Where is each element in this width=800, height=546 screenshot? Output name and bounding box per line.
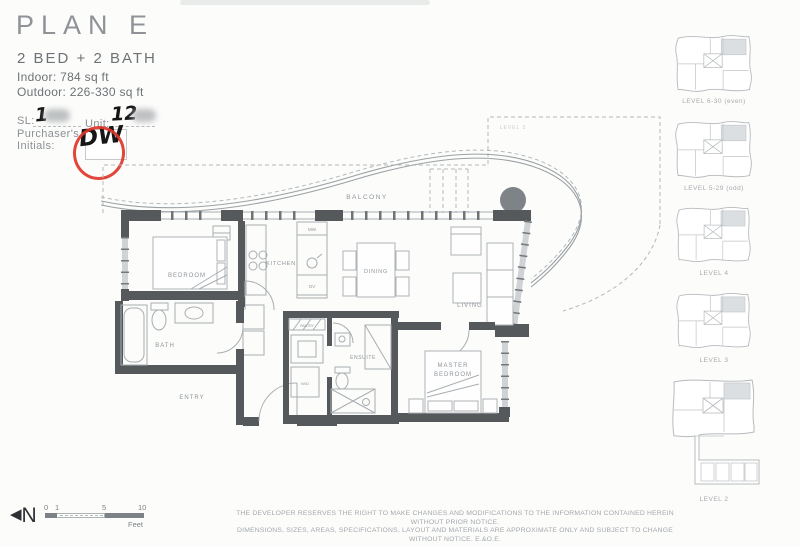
ensuite-toilet-bowl bbox=[336, 373, 348, 389]
shaft-x bbox=[331, 389, 375, 413]
page-title: PLAN E bbox=[16, 10, 154, 41]
wall-pier bbox=[315, 210, 343, 221]
bedroom-label: BEDROOM bbox=[168, 273, 206, 279]
scale-segment-dark-2 bbox=[105, 513, 144, 518]
bath-right-wall bbox=[236, 349, 244, 373]
pillow bbox=[217, 240, 225, 261]
pillow bbox=[217, 263, 225, 284]
kitchen-label: KITCHEN bbox=[266, 261, 296, 267]
key-plan-level-2 bbox=[666, 374, 760, 492]
shower-diagonal bbox=[365, 325, 391, 369]
key-plan-label: LEVEL 2 bbox=[666, 496, 762, 503]
bath-label: BATH bbox=[155, 343, 175, 349]
north-triangle-icon: ◀ bbox=[10, 506, 22, 523]
nightstand bbox=[483, 399, 497, 413]
master-top-wall bbox=[395, 322, 441, 330]
bath-left-wall bbox=[115, 301, 123, 371]
ensuite-sink-bowl bbox=[339, 336, 345, 342]
room-bedroom: BEDROOM bbox=[123, 221, 274, 310]
level-note-label: LEVEL 3 bbox=[500, 125, 527, 131]
floorplan-sheet: PLAN E 2 BED + 2 BATH Indoor: 784 sq ft … bbox=[0, 0, 800, 546]
living-window-band bbox=[514, 221, 528, 327]
master-bottom-wall bbox=[393, 413, 509, 422]
dining-chair bbox=[396, 277, 409, 296]
kitchen-sink bbox=[307, 258, 317, 268]
bath-sink bbox=[185, 307, 203, 319]
entry-left-wall bbox=[236, 371, 244, 425]
balcony-stair-dashes bbox=[430, 169, 468, 213]
closet-inner-wall bbox=[327, 318, 332, 346]
wall-pier bbox=[493, 210, 531, 221]
bedroom-bath-wall bbox=[123, 291, 241, 300]
bathtub bbox=[121, 305, 147, 365]
key-plan-sidebar: LEVEL 6-30 (even) LEVEL 5-29 (odd) LEVEL… bbox=[666, 14, 762, 534]
scale-bar: 0 1 5 10 Feet bbox=[44, 503, 154, 533]
master-pillow bbox=[454, 401, 478, 411]
scale-segment-dark-1 bbox=[45, 513, 57, 518]
faucet-line bbox=[317, 254, 322, 258]
indoor-area: Indoor: 784 sq ft bbox=[17, 70, 109, 84]
linen-box bbox=[291, 335, 323, 363]
bath-bottom-wall bbox=[115, 365, 243, 374]
master-label-1: MASTER bbox=[437, 363, 468, 369]
sl-redaction-smudge bbox=[44, 109, 70, 122]
key-plan-level-6-30 bbox=[666, 30, 760, 96]
dining-chair bbox=[343, 277, 356, 296]
wall-pier bbox=[121, 221, 129, 237]
microwave-label: MW bbox=[308, 227, 317, 232]
bed bbox=[153, 237, 227, 289]
north-arrow: ◀N bbox=[10, 504, 38, 528]
key-plan-label: LEVEL 4 bbox=[666, 270, 762, 277]
kitchen-counter bbox=[246, 225, 266, 295]
key-plan-label: LEVEL 6-30 (even) bbox=[666, 98, 762, 105]
living-label: LIVING bbox=[457, 303, 483, 309]
cooktop-burner bbox=[249, 251, 257, 259]
tall-cabinet bbox=[243, 331, 264, 355]
dining-chair bbox=[396, 251, 409, 270]
coffee-table bbox=[453, 273, 481, 303]
scale-tick-10: 10 bbox=[138, 503, 146, 512]
shaft-circle bbox=[363, 399, 370, 406]
wall-pier bbox=[221, 210, 243, 221]
plan-type: 2 BED + 2 BATH bbox=[17, 50, 157, 67]
pantry-label: PANTRY bbox=[300, 324, 315, 328]
room-living: LIVING bbox=[451, 227, 513, 325]
outdoor-area: Outdoor: 226-330 sq ft bbox=[17, 85, 144, 99]
entry-bottom-wall bbox=[243, 417, 259, 426]
ensuite-bottom-wall bbox=[283, 415, 399, 424]
linen-box-inner bbox=[298, 341, 316, 357]
ensuite-label: ENSUITE bbox=[350, 355, 376, 361]
master-label-2: BEDROOM bbox=[434, 372, 472, 378]
bath-right-wall bbox=[236, 301, 244, 323]
disclaimer-line-1: THE DEVELOPER RESERVES THE RIGHT TO MAKE… bbox=[232, 510, 678, 527]
key-plan-level-3 bbox=[666, 288, 760, 352]
washer-dryer-label: W/D bbox=[301, 381, 309, 386]
sofa bbox=[487, 243, 513, 325]
floor-plan-drawing: BALCONY LEVEL 3 bbox=[95, 105, 670, 470]
toilet-bowl bbox=[152, 310, 166, 330]
bedroom-kitchen-wall bbox=[238, 221, 245, 297]
bathtub-inner bbox=[124, 308, 144, 362]
nightstand bbox=[409, 399, 423, 413]
wall-corner bbox=[495, 324, 529, 337]
sl-underline bbox=[33, 126, 81, 127]
scale-tick-5: 5 bbox=[102, 503, 106, 512]
closet-left-wall bbox=[283, 311, 289, 423]
key-plan-level-4 bbox=[666, 202, 760, 266]
toilet-tank bbox=[151, 303, 168, 310]
armchair bbox=[451, 227, 481, 255]
room-dining: DINING bbox=[343, 243, 409, 297]
scale-unit-label: Feet bbox=[128, 520, 143, 529]
column-circle bbox=[500, 187, 526, 213]
master-pillow bbox=[428, 401, 452, 411]
key-plan-level-5-29 bbox=[666, 116, 760, 182]
ensuite-sink bbox=[335, 333, 350, 346]
ensuite-toilet-tank bbox=[335, 367, 350, 373]
room-master-bedroom: MASTER BEDROOM bbox=[393, 322, 510, 422]
ensuite-right-wall bbox=[391, 318, 398, 418]
closet-top-wall bbox=[283, 311, 399, 318]
key-plan-label: LEVEL 5-29 (odd) bbox=[666, 185, 762, 192]
scale-dash-line bbox=[60, 515, 103, 516]
room-bath: BATH bbox=[115, 301, 244, 374]
dining-label: DINING bbox=[364, 269, 388, 275]
master-top-wall bbox=[469, 322, 495, 330]
fridge bbox=[243, 305, 264, 329]
vanity bbox=[175, 303, 213, 323]
disclaimer-line-2: DIMENSIONS, SIZES, AREAS, SPECIFICATIONS… bbox=[232, 527, 678, 544]
oven-label: OV bbox=[309, 284, 316, 289]
north-letter: N bbox=[22, 504, 38, 527]
entry-label: ENTRY bbox=[179, 395, 204, 401]
dining-chair bbox=[343, 251, 356, 270]
key-plan-label: LEVEL 3 bbox=[666, 357, 762, 364]
room-ensuite: ENSUITE bbox=[283, 318, 399, 424]
scale-tick-0: 0 bbox=[44, 503, 48, 512]
disclaimer: THE DEVELOPER RESERVES THE RIGHT TO MAKE… bbox=[232, 510, 678, 544]
balcony-dashed-boundary bbox=[103, 117, 660, 225]
balcony-dashed-curve bbox=[563, 225, 660, 311]
cooktop-burner bbox=[249, 262, 257, 270]
wall-pier bbox=[121, 210, 161, 221]
scan-artifact bbox=[180, 0, 430, 5]
scale-tick-1: 1 bbox=[55, 503, 59, 512]
balcony-label: BALCONY bbox=[346, 194, 388, 201]
